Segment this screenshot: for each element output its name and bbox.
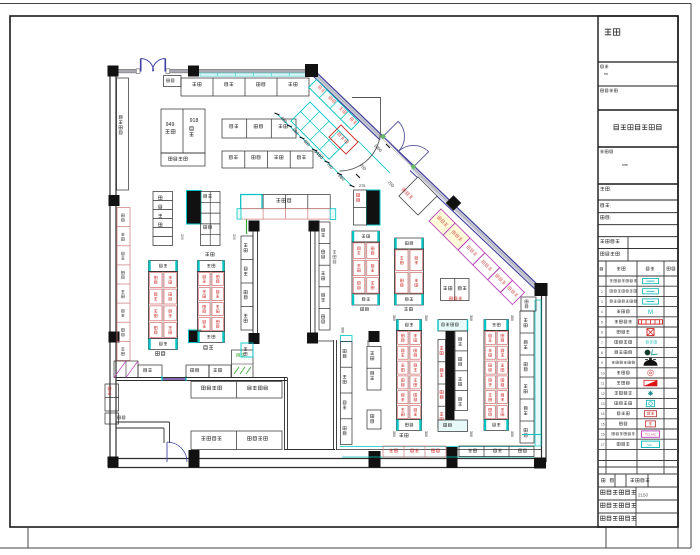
- svg-text:7: 7: [601, 341, 603, 345]
- svg-text::: :: [610, 187, 611, 192]
- svg-text:949: 949: [166, 122, 175, 128]
- svg-text:300: 300: [469, 315, 473, 321]
- svg-text:4: 4: [601, 310, 603, 314]
- svg-text:300: 300: [469, 431, 473, 437]
- svg-text:275: 275: [359, 184, 365, 188]
- svg-text:3: 3: [601, 300, 603, 304]
- svg-text:5: 5: [601, 320, 603, 324]
- svg-text:2: 2: [601, 290, 603, 294]
- svg-text:9: 9: [601, 361, 603, 365]
- svg-text:200: 200: [232, 234, 236, 240]
- svg-text:***: ***: [622, 164, 628, 170]
- svg-text:17: 17: [601, 443, 605, 447]
- svg-text:16: 16: [601, 433, 605, 437]
- svg-text:14: 14: [601, 412, 605, 416]
- svg-text:13: 13: [601, 402, 605, 406]
- svg-text:300: 300: [392, 315, 396, 321]
- svg-text:11: 11: [601, 382, 605, 386]
- svg-text:300: 300: [424, 431, 428, 437]
- svg-text:**: **: [604, 73, 608, 79]
- svg-text:M: M: [648, 310, 653, 316]
- svg-text:8: 8: [601, 351, 603, 355]
- svg-text:12: 12: [601, 392, 605, 396]
- svg-text:300: 300: [424, 315, 428, 321]
- svg-text:300: 300: [341, 327, 345, 333]
- svg-text::: :: [610, 216, 611, 221]
- svg-text:6: 6: [601, 331, 603, 335]
- svg-text:300: 300: [392, 431, 396, 437]
- svg-text:200: 200: [180, 234, 184, 240]
- svg-text:10: 10: [601, 371, 605, 375]
- svg-text:300: 300: [366, 340, 370, 346]
- svg-text:918: 918: [190, 118, 199, 124]
- svg-text:2150: 2150: [638, 493, 649, 498]
- svg-text:300: 300: [510, 431, 514, 437]
- svg-text:YG...: YG...: [647, 443, 654, 447]
- svg-text:15: 15: [601, 422, 605, 426]
- svg-text:TCL MC: TCL MC: [645, 433, 657, 437]
- svg-text:300: 300: [510, 315, 514, 321]
- svg-text::: :: [610, 204, 611, 209]
